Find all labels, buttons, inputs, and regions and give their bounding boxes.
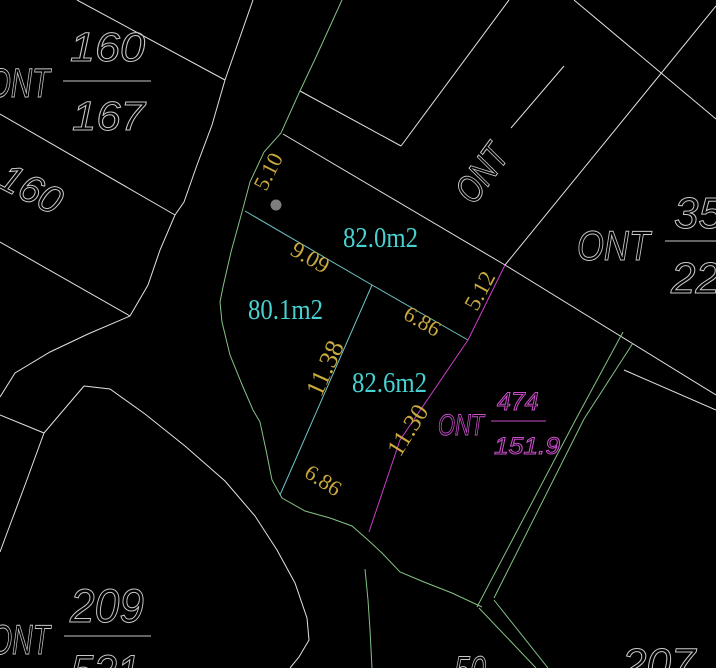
- svg-text:531: 531: [70, 645, 140, 668]
- svg-text:354: 354: [674, 189, 716, 238]
- svg-text:ONT: ONT: [0, 616, 52, 663]
- svg-text:167: 167: [72, 93, 147, 139]
- svg-text:82.6m2: 82.6m2: [352, 367, 427, 399]
- svg-text:207: 207: [621, 640, 697, 668]
- svg-text:209: 209: [69, 579, 144, 632]
- svg-text:474: 474: [497, 388, 539, 416]
- svg-text:82.0m2: 82.0m2: [343, 222, 418, 254]
- svg-text:151.9: 151.9: [494, 433, 560, 460]
- svg-text:50: 50: [454, 649, 486, 668]
- svg-text:80.1m2: 80.1m2: [248, 294, 323, 326]
- svg-text:ONT: ONT: [0, 60, 52, 106]
- svg-text:ONT: ONT: [438, 409, 486, 442]
- svg-text:160: 160: [70, 24, 145, 70]
- svg-text:224: 224: [670, 254, 716, 303]
- svg-text:ONT: ONT: [577, 222, 653, 269]
